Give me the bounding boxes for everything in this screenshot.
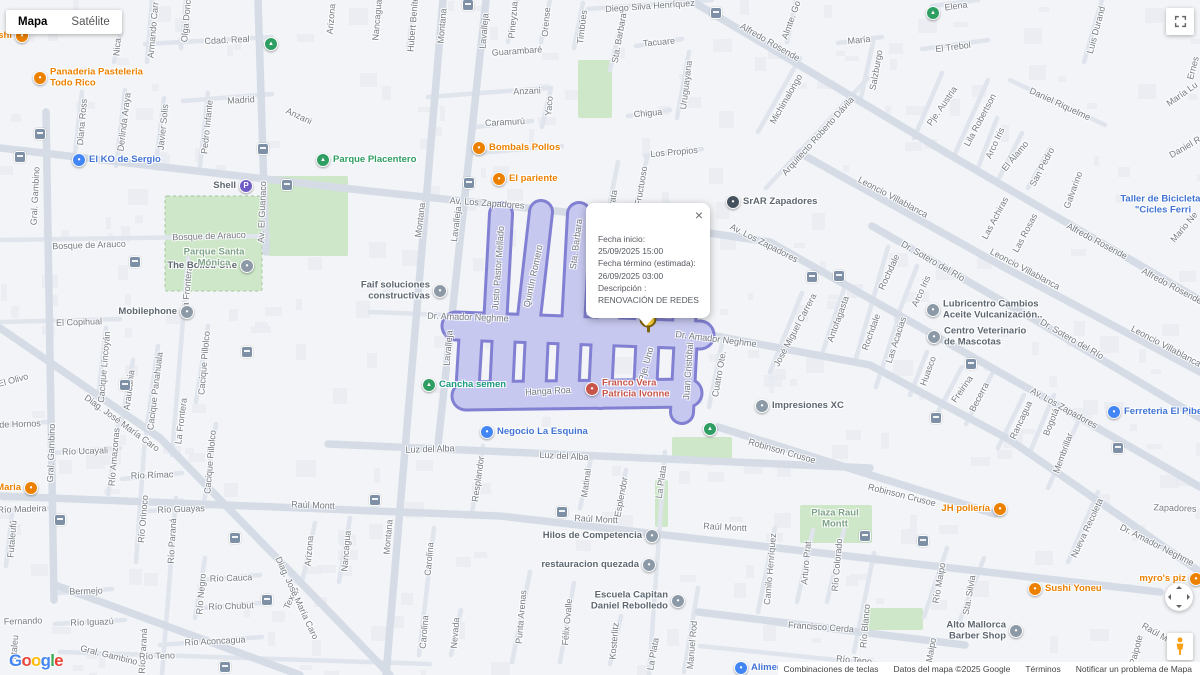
cart-icon: •	[72, 153, 86, 167]
street-label: Membrillar	[1051, 432, 1075, 475]
street-label: Huasco	[918, 355, 938, 387]
google-logo-letter: o	[31, 651, 41, 670]
street-label: Yaco	[543, 96, 555, 117]
street-label: Carolina	[423, 542, 436, 576]
generic-icon: •	[1009, 624, 1023, 638]
street-label: Armando Carr	[146, 1, 161, 58]
street-label: Resplandor	[470, 456, 486, 503]
poi-label: Escuela Capitan Daniel Rebolledo	[591, 591, 668, 612]
street-label: Elena	[944, 0, 968, 13]
street-label: Las Achiras	[980, 195, 1011, 241]
red-icon: •	[585, 382, 599, 396]
street-label: Cuatro Ote.	[710, 350, 728, 398]
street-label: Bosque de Arauco	[172, 230, 246, 243]
street-label: Sta. Barbara	[568, 218, 584, 269]
street-label: Av. Los Zapadores	[1029, 386, 1099, 431]
pegman-button[interactable]	[1167, 633, 1193, 660]
street-label: Río Ucayali	[62, 445, 108, 457]
street-label: Nueva Recoleta	[1069, 497, 1105, 559]
shop-icon: •	[480, 425, 494, 439]
park-icon: ▲	[926, 6, 940, 20]
generic-icon: •	[926, 303, 940, 317]
street-label: Cdad. Real	[204, 34, 249, 46]
pan-control[interactable]	[1165, 583, 1193, 611]
park-icon: ▲	[316, 153, 330, 167]
street-label: Arizona	[325, 3, 338, 34]
street-label: Los Propios	[650, 145, 698, 159]
pan-up-icon[interactable]	[1176, 586, 1182, 589]
generic-icon: •	[671, 594, 685, 608]
street-label: Olga Donc	[179, 0, 193, 43]
popup-line-fecha-termino: Fecha término (estimada):	[598, 257, 701, 269]
street-label: Gral. Gambino	[79, 643, 138, 667]
terms-link[interactable]: Términos	[1025, 664, 1060, 674]
transit-station-icon[interactable]	[462, 0, 474, 11]
transit-station-icon[interactable]	[463, 177, 475, 189]
google-maps-canvas[interactable]: Diego Silva HenríquezHubert BenítezPiney…	[0, 0, 1200, 675]
street-label: Montana	[413, 202, 427, 238]
street-label: El Olivo	[0, 371, 29, 389]
street-label: El Copihual	[56, 316, 102, 328]
street-label: Raúl Montt	[291, 499, 335, 511]
street-label: Arco Iris	[983, 126, 1006, 160]
street-label: Raúl Montt	[703, 521, 747, 533]
street-label: Orense	[540, 7, 553, 37]
google-logo-letter: o	[21, 651, 31, 670]
fullscreen-button[interactable]	[1166, 8, 1194, 35]
street-label: Guarambaré	[491, 44, 542, 58]
report-problem-link[interactable]: Notificar un problema de Mapa	[1076, 664, 1192, 674]
street-label: La Frontera	[173, 397, 189, 444]
street-label: Nevada	[449, 617, 462, 649]
closure-info-popup: × Fecha inicio: 25/09/2025 15:00 Fecha t…	[586, 203, 710, 318]
street-label: Javier Solis	[156, 104, 171, 151]
street-label: Almte. Go	[779, 0, 802, 41]
street-label: Arquitecto Roberto Dávila	[780, 95, 856, 178]
transit-station-icon[interactable]	[859, 530, 871, 542]
street-label: Dr. Sotero del Río	[900, 239, 967, 283]
street-label: Manuel Rod	[685, 620, 699, 669]
street-label: Dr. Amador Neghme	[1118, 522, 1195, 568]
street-label: Lavalleja	[449, 206, 463, 242]
street-label: Rochdale	[876, 253, 901, 292]
street-label: Alfredo Rosende	[1140, 266, 1200, 306]
poi-label: Parque Placentero	[333, 155, 416, 166]
street-label: La Plata	[645, 637, 661, 671]
street-label: Robinson Crusoe	[867, 482, 937, 509]
street-label: Bogotá	[1041, 407, 1061, 437]
street-label: Futaleufú	[5, 520, 18, 558]
street-label: Río Orinoco	[136, 495, 150, 544]
street-label: Cacique Lincoyán	[96, 331, 112, 403]
street-label: Derlinda Araya	[115, 92, 132, 152]
generic-icon: •	[642, 558, 656, 572]
street-label: Gral. Gambino	[28, 167, 41, 226]
transit-station-icon[interactable]	[833, 270, 845, 282]
street-label: San Pedro	[1028, 146, 1057, 188]
street-label: Río Rímac	[131, 469, 174, 480]
park-icon: ▲	[422, 378, 436, 392]
street-label: Río Blanco	[858, 604, 872, 649]
street-label: Pineyzua	[506, 1, 519, 39]
poi-label: Taller de Bicicletas "Cicles Ferri	[1120, 195, 1200, 216]
street-label: Río Iguazú	[70, 616, 114, 628]
parking-icon: P	[239, 179, 253, 193]
map-type-button-satelite[interactable]: Satélite	[59, 10, 121, 34]
street-label: Río Paraná	[166, 518, 178, 564]
popup-value-fecha-termino: 26/09/2025 03:00	[598, 270, 701, 282]
street-label: Av. El Guanaco	[256, 181, 268, 243]
street-label: Luis Durand	[1085, 5, 1107, 54]
street-label: Río Cauca	[210, 572, 253, 583]
shop-icon: •	[734, 661, 748, 675]
poi-label: Impresiones XC	[772, 401, 844, 412]
street-label: La Plata	[654, 465, 668, 499]
street-label: Ernes	[1185, 55, 1200, 80]
street-label: Francisco Cerda	[788, 620, 855, 635]
generic-icon: •	[433, 284, 447, 298]
pan-right-icon[interactable]	[1187, 594, 1190, 600]
poi-label: El pariente	[509, 174, 558, 185]
poi-label: Hilos de Competencia	[543, 531, 642, 542]
poi-label: Parque Santa Mónica	[184, 248, 245, 269]
street-label: Chigua	[633, 107, 662, 119]
pan-left-icon[interactable]	[1168, 594, 1171, 600]
street-label: El Álamo	[1000, 139, 1031, 173]
poi-label: Alto Mallorca Barber Shop	[946, 621, 1006, 642]
street-label: Anzani	[284, 106, 313, 127]
transit-station-icon[interactable]	[965, 358, 977, 370]
transit-station-icon[interactable]	[257, 143, 269, 155]
poi-label: Plaza Raul Montt	[811, 509, 859, 530]
fullscreen-icon	[1174, 15, 1187, 28]
street-label: de Hornos	[0, 418, 41, 429]
generic-icon: •	[645, 529, 659, 543]
poi-label: Centro Veterinario de Mascotas	[944, 327, 1026, 348]
food-icon: •	[24, 481, 38, 495]
poi-label: Maria	[0, 483, 21, 494]
street-label: Fernando	[4, 615, 43, 626]
poi-label: Franco Vera Patricia Ivonne	[602, 379, 670, 400]
street-label: Fructuoso	[633, 165, 650, 206]
street-label: Luz del Alba	[405, 443, 454, 455]
keyboard-shortcuts-link[interactable]: Combinaciones de teclas	[784, 664, 879, 674]
street-label: Timbúes	[575, 9, 589, 44]
street-label: Luz del Alba	[539, 450, 589, 463]
transit-station-icon[interactable]	[710, 7, 722, 19]
street-label: Raúl Montt	[574, 513, 618, 525]
street-label: Daniel Riquelme	[1028, 86, 1092, 123]
transit-station-icon[interactable]	[14, 151, 26, 163]
street-label: Nancagua	[339, 530, 353, 572]
poi-label: Cancha semen	[439, 380, 506, 391]
street-label: Av. Los Zapadores	[728, 222, 799, 265]
transit-station-icon[interactable]	[1112, 442, 1124, 454]
street-label: Antofagasta	[825, 295, 851, 344]
street-label: José Miguel Carrera	[772, 292, 819, 368]
street-label: Raúl M	[1140, 621, 1170, 644]
street-label: Michimalongo	[768, 72, 804, 125]
transit-station-icon[interactable]	[219, 661, 231, 673]
street-label: Diana Ross	[75, 98, 89, 145]
street-label: Esplendor	[613, 476, 630, 518]
street-label: Leoncio Villablanca	[988, 246, 1061, 291]
street-label: Río Amazonas	[106, 427, 121, 486]
poi-label: Ferreteria El Pibe	[1124, 407, 1200, 418]
map-labels-layer: Diego Silva HenríquezHubert BenítezPiney…	[0, 0, 1200, 675]
popup-tail	[638, 317, 654, 326]
poi-label: Mobilephone	[118, 307, 177, 318]
street-label: Leoncio Villablanca	[1129, 323, 1200, 368]
park-icon: ▲	[703, 422, 717, 436]
poi-label: El KO de Sergio	[89, 155, 161, 166]
street-label: Hubert Benítez	[405, 0, 420, 52]
food-icon: •	[472, 141, 486, 155]
street-label: Uruguayana	[678, 60, 694, 110]
street-label: Kosterlitz	[607, 622, 620, 660]
street-label: Gral. Gambino	[45, 424, 57, 483]
street-label: Arturo Prat	[799, 541, 813, 585]
street-label: Cacique Pillolco	[202, 430, 218, 495]
google-logo-letter: G	[9, 651, 21, 670]
close-icon[interactable]: ×	[695, 208, 703, 222]
poi-label: Panaderia Pasteleria Todo Rico	[50, 68, 143, 89]
street-label: Río Guayas	[157, 503, 205, 515]
transit-station-icon[interactable]	[54, 514, 66, 526]
street-label: María Lu	[1165, 80, 1200, 109]
map-type-control: Mapa Satélite	[6, 10, 122, 34]
transit-station-icon[interactable]	[930, 412, 942, 424]
attribution-bar: Combinaciones de teclas Datos del mapa ©…	[778, 662, 1200, 675]
poi-label: Shell	[213, 181, 236, 192]
street-label: Montana	[381, 519, 394, 555]
street-label: Nica	[111, 38, 123, 57]
popup-value-fecha-inicio: 25/09/2025 15:00	[598, 245, 701, 257]
transit-station-icon[interactable]	[129, 256, 141, 268]
street-label: Carolina	[418, 615, 431, 649]
street-label: Becerra	[967, 381, 991, 414]
street-label: Zapadores	[1153, 502, 1196, 513]
street-label: Lavalleja	[441, 330, 454, 366]
google-logo-letter: g	[41, 651, 51, 670]
transit-station-icon[interactable]	[369, 494, 381, 506]
street-label: Maipo	[924, 637, 938, 663]
street-label: Rancagua	[1008, 399, 1034, 440]
popup-value-descripcion: RENOVACIÓN DE REDES	[598, 294, 701, 306]
generic-icon: •	[927, 330, 941, 344]
poi-label: JH pollería	[941, 504, 990, 515]
poi-label: restauracion quezada	[541, 560, 639, 571]
park-icon: ▲	[264, 37, 278, 51]
street-label: Cacique Pillolco	[196, 331, 212, 396]
transit-station-icon[interactable]	[229, 532, 241, 544]
google-logo-letter: e	[54, 651, 63, 670]
street-label: El Trebol	[935, 40, 971, 54]
google-logo: Google	[9, 651, 63, 671]
generic-icon: •	[755, 399, 769, 413]
street-label: Río Chubut	[208, 600, 254, 612]
street-label: Galvarino	[1062, 170, 1085, 210]
street-label: Anzani	[513, 86, 541, 97]
poi-label: Sushi Yoneu	[1045, 584, 1102, 595]
street-label: Justo Pastor Mellado	[490, 226, 506, 311]
poi-label: Lubricentro Cambios Aceite Vulcanización…	[943, 300, 1042, 321]
street-label: Río Teno	[139, 650, 175, 661]
street-label: Río Aconcagua	[184, 634, 245, 647]
street-label: Río Negro	[194, 573, 208, 615]
street-label: Las Acacias	[884, 316, 908, 365]
food-icon: •	[33, 71, 47, 85]
pan-down-icon[interactable]	[1176, 605, 1182, 608]
street-label: Pedro Infante	[199, 100, 215, 155]
street-label: Rochdale	[860, 312, 882, 351]
street-label: Lavalleja	[477, 13, 490, 49]
street-label: Caramurú	[485, 116, 525, 128]
street-label: Juan Cristóbal	[681, 342, 695, 400]
street-label: Sta. Silvia	[961, 574, 978, 615]
popup-line-descripcion: Descripción :	[598, 282, 701, 294]
poi-label: SrAR Zapadores	[743, 197, 817, 208]
popup-line-fecha-inicio: Fecha inicio:	[598, 233, 701, 245]
food-icon: •	[1189, 572, 1200, 586]
street-label: Robinson Crusoe	[747, 437, 817, 466]
transit-station-icon[interactable]	[261, 594, 273, 606]
transit-station-icon[interactable]	[34, 128, 46, 140]
street-label: Hanga Roa	[525, 385, 571, 397]
street-label: Matinal	[579, 468, 593, 498]
street-label: Montana	[435, 8, 448, 44]
food-icon: •	[993, 502, 1007, 516]
food-icon: •	[492, 172, 506, 186]
street-label: Río Maipo	[931, 562, 948, 604]
street-label: Pje. Austria	[925, 84, 959, 127]
street-label: Río Colorado	[830, 538, 845, 592]
poi-label: Faif soluciones constructivas	[361, 281, 430, 302]
street-label: Las Rosas	[1011, 212, 1040, 254]
transit-station-icon[interactable]	[806, 271, 818, 283]
food-icon: •	[1028, 582, 1042, 596]
street-label: Diag. José María Caro	[273, 555, 320, 641]
street-label: Leoncio Villablanca	[856, 174, 929, 219]
transit-station-icon[interactable]	[281, 179, 293, 191]
dark-icon: •	[726, 195, 740, 209]
street-label: Tacuare	[643, 36, 676, 49]
street-label: Bermejo	[69, 585, 103, 596]
pegman-icon	[1174, 637, 1186, 656]
poi-label: Bombals Pollos	[489, 143, 560, 154]
street-label: Bosque de Arauco	[52, 239, 126, 252]
street-label: Nancagua	[370, 0, 384, 41]
street-label: Alfredo Rosende	[1065, 221, 1129, 261]
map-type-button-mapa[interactable]: Mapa	[6, 10, 59, 34]
street-label: María	[847, 34, 871, 46]
transit-station-icon[interactable]	[241, 346, 253, 358]
street-label: Sta. Barbara	[610, 12, 629, 64]
poi-label: Negocio La Esquina	[497, 427, 588, 438]
street-label: Dr. Amador Neghme	[427, 311, 509, 324]
street-label: Félix Ovalle	[560, 598, 574, 646]
street-label: Dr. Sotero del Río	[1039, 317, 1106, 361]
street-label: Punta Arenas	[514, 590, 529, 645]
map-data-label: Datos del mapa ©2025 Google	[893, 664, 1010, 674]
street-label: Río Madeira	[0, 503, 47, 515]
street-label: Madrid	[227, 94, 255, 105]
shop-icon: •	[1107, 405, 1121, 419]
street-label: Quintín Romero	[522, 244, 545, 308]
street-label: Camilo Henríquez	[762, 533, 778, 606]
transit-station-icon[interactable]	[556, 506, 568, 518]
generic-icon: •	[180, 305, 194, 319]
street-label: Salzburgo	[868, 49, 885, 91]
transit-station-icon[interactable]	[119, 379, 131, 391]
street-label: Cacique Panahuala	[145, 351, 164, 430]
street-label: Arizona	[303, 535, 316, 566]
street-label: Daniel R	[1168, 134, 1200, 160]
transit-station-icon[interactable]	[917, 535, 929, 547]
